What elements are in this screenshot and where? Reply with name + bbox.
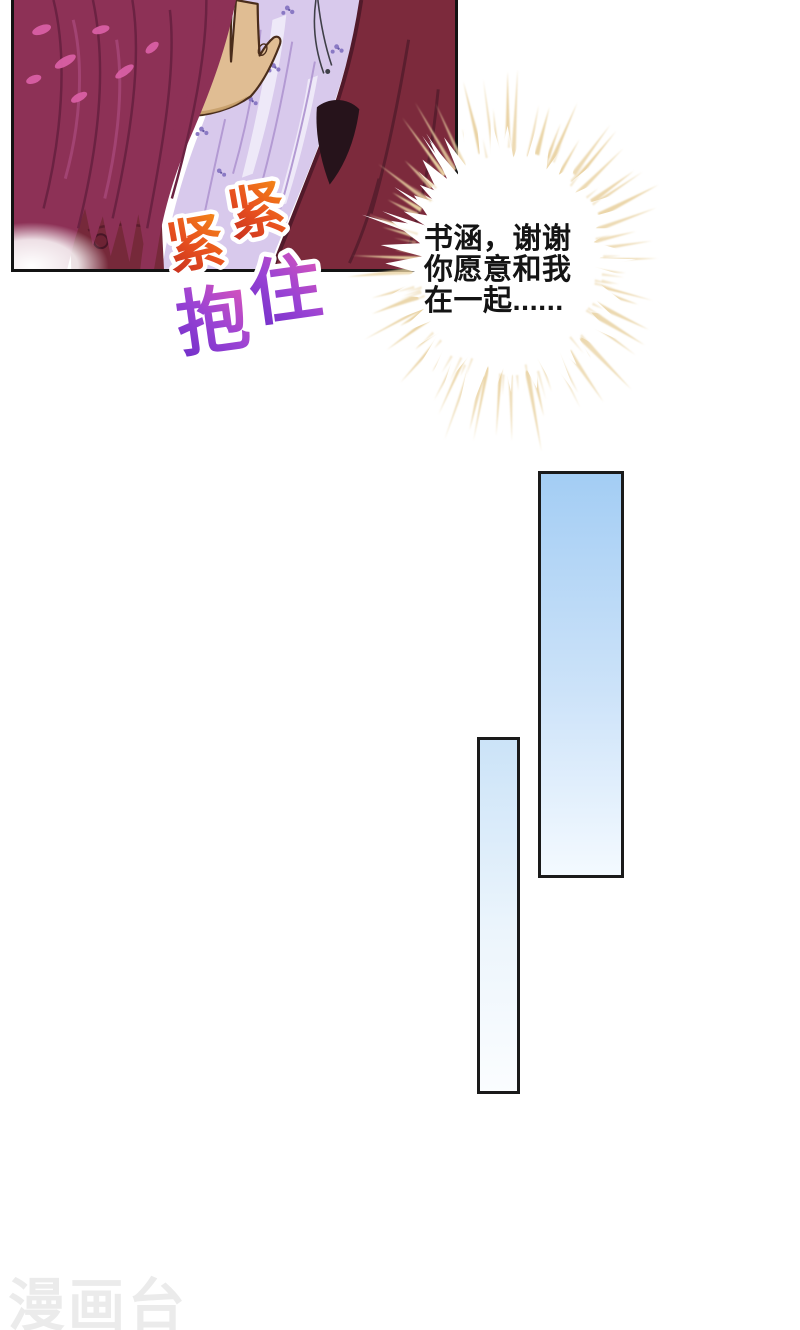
speech-line: 书涵，谢谢 bbox=[424, 224, 604, 255]
comic-page: 书涵，谢谢 你愿意和我 在一起...... 紧 紧 抱 住 bbox=[0, 0, 800, 1330]
speech-text: 书涵，谢谢 你愿意和我 在一起...... bbox=[424, 224, 604, 317]
svg-text:抱: 抱 bbox=[172, 277, 254, 366]
sfx-text-hug: 抱 住 bbox=[158, 236, 348, 366]
watermark: 漫画台 bbox=[8, 1260, 188, 1330]
decor-bar-small bbox=[477, 737, 520, 1094]
decor-bar-large bbox=[538, 471, 624, 878]
speech-line: 在一起...... bbox=[424, 286, 604, 317]
svg-text:住: 住 bbox=[244, 247, 326, 336]
speech-line: 你愿意和我 bbox=[424, 255, 604, 286]
